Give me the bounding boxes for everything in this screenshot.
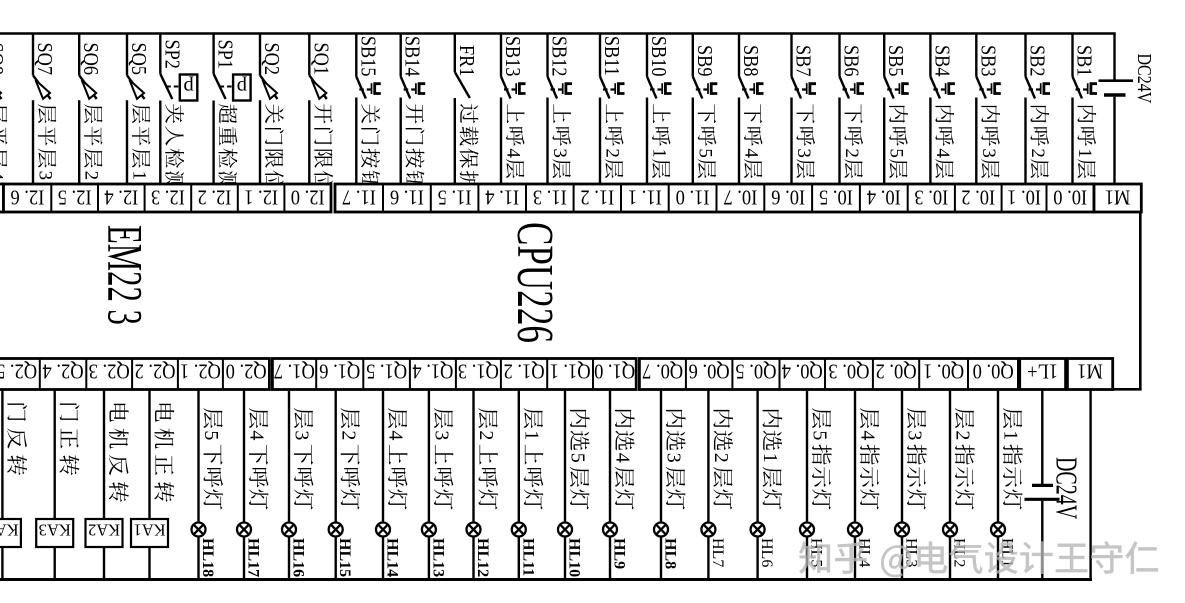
svg-text:4: 4 <box>932 148 953 158</box>
svg-text:I0. 7: I0. 7 <box>723 185 757 208</box>
svg-text:5: 5 <box>886 148 907 158</box>
svg-text:Q1. 1: Q1. 1 <box>550 359 591 382</box>
svg-text:Q1. 6: Q1. 6 <box>319 359 360 382</box>
svg-text:1: 1 <box>520 430 542 440</box>
svg-text:I2. 4: I2. 4 <box>104 185 138 208</box>
svg-text:I1. 4: I1. 4 <box>485 185 519 208</box>
svg-text:FR1: FR1 <box>454 45 477 76</box>
svg-text:1: 1 <box>649 148 670 158</box>
svg-text:DC24V: DC24V <box>1134 54 1156 104</box>
svg-text:Q2. 3: Q2. 3 <box>89 359 130 382</box>
svg-text:4: 4 <box>0 171 7 181</box>
svg-text:I2. 2: I2. 2 <box>198 185 232 208</box>
svg-text:SB15: SB15 <box>356 36 379 77</box>
svg-text:I0. 6: I0. 6 <box>771 185 805 208</box>
svg-text:I2. 0: I2. 0 <box>291 185 325 208</box>
svg-text:Q0. 0: Q0. 0 <box>973 359 1014 382</box>
svg-text:I1. 0: I1. 0 <box>676 185 710 208</box>
svg-text:Q0. 6: Q0. 6 <box>689 359 730 382</box>
svg-text:I2. 5: I2. 5 <box>58 185 92 208</box>
svg-text:SP2: SP2 <box>160 40 183 69</box>
svg-text:1: 1 <box>759 453 781 463</box>
svg-text:SB10: SB10 <box>647 36 670 77</box>
svg-text:KA2: KA2 <box>88 521 120 540</box>
svg-text:Q2. 1: Q2. 1 <box>180 359 221 382</box>
svg-text:HL7: HL7 <box>709 538 726 567</box>
svg-text:4: 4 <box>612 453 634 463</box>
svg-text:SB12: SB12 <box>547 36 570 77</box>
svg-text:1L+: 1L+ <box>1027 359 1058 382</box>
svg-text:SQ6: SQ6 <box>79 43 102 76</box>
svg-text:1: 1 <box>1074 148 1095 158</box>
svg-text:I2. 1: I2. 1 <box>244 185 278 208</box>
svg-text:HL14: HL14 <box>384 538 401 577</box>
svg-text:I1. 5: I1. 5 <box>438 185 472 208</box>
svg-text:5: 5 <box>809 430 831 440</box>
svg-text:SB8: SB8 <box>739 45 762 77</box>
svg-text:Q2. 5: Q2. 5 <box>0 359 37 382</box>
svg-text:p: p <box>183 76 194 100</box>
svg-text:Q0. 1: Q0. 1 <box>923 359 964 382</box>
svg-text:3: 3 <box>904 430 926 440</box>
svg-text:SB13: SB13 <box>501 36 524 77</box>
svg-text:HL18: HL18 <box>199 538 216 577</box>
svg-text:SQ5: SQ5 <box>127 43 150 76</box>
svg-text:EM22 3: EM22 3 <box>98 225 153 325</box>
svg-text:HL3: HL3 <box>903 538 920 567</box>
svg-text:I1. 6: I1. 6 <box>390 185 424 208</box>
svg-text:HL6: HL6 <box>758 538 775 567</box>
svg-text:3: 3 <box>291 430 313 440</box>
svg-text:DC24V: DC24V <box>1049 457 1083 519</box>
svg-text:SB5: SB5 <box>884 45 907 77</box>
svg-text:SB1: SB1 <box>1072 45 1095 76</box>
svg-text:SB14: SB14 <box>400 36 423 77</box>
svg-text:Q0. 5: Q0. 5 <box>735 359 776 382</box>
svg-text:SB11: SB11 <box>600 36 623 76</box>
svg-text:Q1. 2: Q1. 2 <box>504 359 545 382</box>
svg-text:2: 2 <box>337 430 359 440</box>
svg-text:I0. 5: I0. 5 <box>819 185 853 208</box>
svg-text:Q1. 5: Q1. 5 <box>366 359 407 382</box>
svg-text:5: 5 <box>567 453 589 463</box>
svg-text:I2. 6: I2. 6 <box>10 185 44 208</box>
svg-text:4: 4 <box>857 430 879 440</box>
svg-text:SB4: SB4 <box>930 45 953 77</box>
svg-text:KA1: KA1 <box>133 521 165 540</box>
svg-text:HL8: HL8 <box>662 538 679 569</box>
svg-text:I1. 7: I1. 7 <box>342 185 376 208</box>
svg-text:HL12: HL12 <box>474 538 491 577</box>
svg-text:3: 3 <box>431 430 453 440</box>
svg-text:HL15: HL15 <box>336 538 353 577</box>
svg-text:Q1. 7: Q1. 7 <box>274 359 315 382</box>
svg-text:SQ8: SQ8 <box>0 43 7 76</box>
svg-text:1: 1 <box>1000 430 1022 440</box>
svg-text:1: 1 <box>129 171 150 181</box>
svg-text:I1. 2: I1. 2 <box>580 185 614 208</box>
svg-text:Q1. 3: Q1. 3 <box>458 359 499 382</box>
svg-text:I1. 3: I1. 3 <box>533 185 567 208</box>
svg-text:Q2. 2: Q2. 2 <box>134 359 175 382</box>
svg-text:KA4: KA4 <box>0 521 18 540</box>
svg-text:4: 4 <box>246 430 268 440</box>
svg-text:2: 2 <box>952 430 974 440</box>
svg-text:SQ1: SQ1 <box>309 43 332 75</box>
svg-text:4: 4 <box>503 148 524 158</box>
svg-text:KA3: KA3 <box>39 521 71 540</box>
svg-text:Q2. 0: Q2. 0 <box>226 359 267 382</box>
svg-text:Q0. 3: Q0. 3 <box>828 359 869 382</box>
svg-text:4: 4 <box>741 148 762 158</box>
svg-text:SB7: SB7 <box>791 45 814 77</box>
svg-text:3: 3 <box>978 148 999 158</box>
svg-text:HL9: HL9 <box>611 538 628 569</box>
svg-text:2: 2 <box>81 171 102 181</box>
svg-text:Q0. 2: Q0. 2 <box>876 359 917 382</box>
svg-text:SQ7: SQ7 <box>33 43 56 76</box>
svg-text:2: 2 <box>710 453 732 463</box>
svg-text:Q1. 4: Q1. 4 <box>412 359 453 382</box>
svg-text:HL13: HL13 <box>429 538 446 577</box>
svg-text:2: 2 <box>475 430 497 440</box>
svg-text:HL11: HL11 <box>519 538 536 576</box>
svg-text:I0. 3: I0. 3 <box>914 185 948 208</box>
svg-text:CPU226: CPU226 <box>506 222 565 343</box>
svg-text:SB6: SB6 <box>839 45 862 77</box>
svg-text:3: 3 <box>549 148 570 158</box>
svg-text:HL10: HL10 <box>566 538 583 577</box>
svg-text:M1: M1 <box>1077 359 1103 382</box>
svg-text:p: p <box>237 76 248 100</box>
svg-text:Q0. 7: Q0. 7 <box>642 359 683 382</box>
svg-text:SP1: SP1 <box>213 40 236 69</box>
svg-text:3: 3 <box>793 148 814 158</box>
svg-text:3: 3 <box>35 171 56 181</box>
svg-text:2: 2 <box>602 148 623 158</box>
svg-text:I0. 2: I0. 2 <box>961 185 995 208</box>
svg-text:5: 5 <box>694 148 715 158</box>
svg-text:SB9: SB9 <box>692 45 715 77</box>
svg-text:3: 3 <box>663 453 685 463</box>
svg-text:SB3: SB3 <box>976 45 999 77</box>
svg-text:SB2: SB2 <box>1025 45 1048 76</box>
svg-text:I1. 1: I1. 1 <box>628 185 662 208</box>
svg-text:Q1. 0: Q1. 0 <box>594 359 635 382</box>
svg-text:HL4: HL4 <box>856 538 873 567</box>
svg-text:HL16: HL16 <box>290 538 307 577</box>
svg-text:M1: M1 <box>1105 185 1131 208</box>
svg-text:HL17: HL17 <box>245 538 262 577</box>
svg-text:I0. 1: I0. 1 <box>1007 185 1041 208</box>
svg-text:2: 2 <box>1027 148 1048 158</box>
svg-text:I0. 0: I0. 0 <box>1053 185 1087 208</box>
svg-text:5: 5 <box>200 430 222 440</box>
svg-text:SQ2: SQ2 <box>260 43 283 75</box>
svg-text:I2. 3: I2. 3 <box>151 185 185 208</box>
svg-text:I0. 4: I0. 4 <box>867 185 901 208</box>
svg-text:Q2. 4: Q2. 4 <box>42 359 83 382</box>
svg-text:4: 4 <box>385 430 407 440</box>
svg-text:2: 2 <box>841 148 862 158</box>
svg-text:Q0. 4: Q0. 4 <box>782 359 823 382</box>
